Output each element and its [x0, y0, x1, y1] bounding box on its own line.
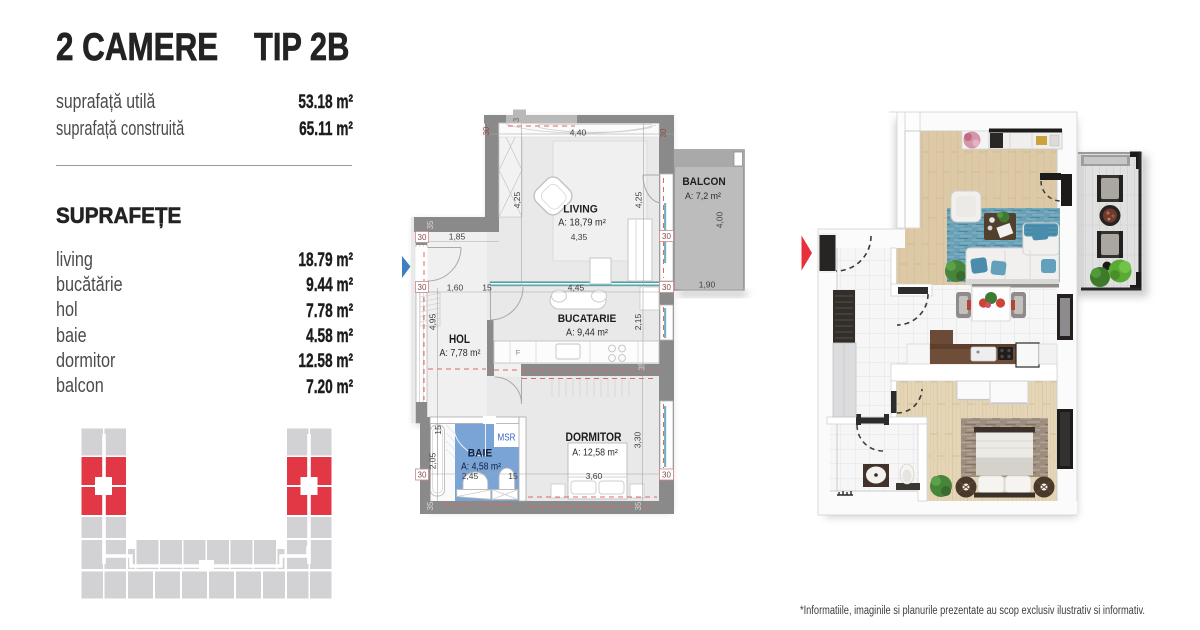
svg-text:35: 35 [426, 220, 435, 229]
svg-text:4,25: 4,25 [512, 191, 522, 208]
svg-text:30: 30 [418, 471, 427, 480]
svg-text:BUCATARIE: BUCATARIE [558, 313, 617, 325]
svg-text:2,45: 2,45 [462, 471, 479, 481]
svg-text:15: 15 [482, 283, 492, 293]
svg-text:HOL: HOL [449, 334, 470, 346]
svg-text:4,00: 4,00 [715, 211, 725, 228]
svg-text:BAIE: BAIE [468, 448, 493, 460]
svg-text:3,30: 3,30 [633, 431, 643, 448]
svg-text:30: 30 [659, 128, 668, 137]
svg-text:30: 30 [418, 233, 427, 242]
svg-text:4,95: 4,95 [428, 313, 438, 330]
svg-text:35: 35 [638, 361, 647, 370]
svg-text:30: 30 [418, 283, 427, 292]
svg-text:3,60: 3,60 [586, 471, 603, 481]
svg-text:1,90: 1,90 [699, 280, 716, 290]
svg-text:30: 30 [662, 232, 671, 241]
svg-text:15: 15 [508, 471, 518, 481]
svg-text:2,15: 2,15 [633, 313, 643, 330]
svg-text:35: 35 [634, 501, 643, 510]
svg-text:A: 7,2 m²: A: 7,2 m² [685, 191, 721, 202]
svg-text:MSR: MSR [498, 433, 516, 444]
svg-text:3: 3 [512, 117, 521, 122]
svg-text:35: 35 [426, 501, 435, 510]
svg-text:F: F [516, 348, 521, 357]
svg-text:30: 30 [482, 126, 491, 135]
svg-text:BALCON: BALCON [682, 176, 725, 188]
svg-text:1,85: 1,85 [449, 232, 466, 242]
svg-text:15: 15 [433, 425, 443, 435]
svg-text:4,25: 4,25 [634, 191, 644, 208]
svg-text:4,45: 4,45 [568, 283, 585, 293]
svg-text:1,60: 1,60 [447, 283, 464, 293]
svg-text:30: 30 [662, 471, 671, 480]
svg-text:4,40: 4,40 [570, 128, 587, 138]
svg-text:4,35: 4,35 [571, 232, 588, 242]
svg-text:A: 9,44 m²: A: 9,44 m² [566, 328, 609, 339]
svg-text:30: 30 [662, 283, 671, 292]
svg-text:A: 7,78 m²: A: 7,78 m² [440, 348, 482, 359]
svg-text:LIVING: LIVING [563, 204, 598, 216]
svg-text:A: 18,79 m²: A: 18,79 m² [558, 218, 606, 229]
svg-text:DORMITOR: DORMITOR [566, 432, 623, 444]
svg-text:A: 12,58 m²: A: 12,58 m² [572, 448, 618, 459]
svg-text:2,05: 2,05 [428, 452, 438, 469]
